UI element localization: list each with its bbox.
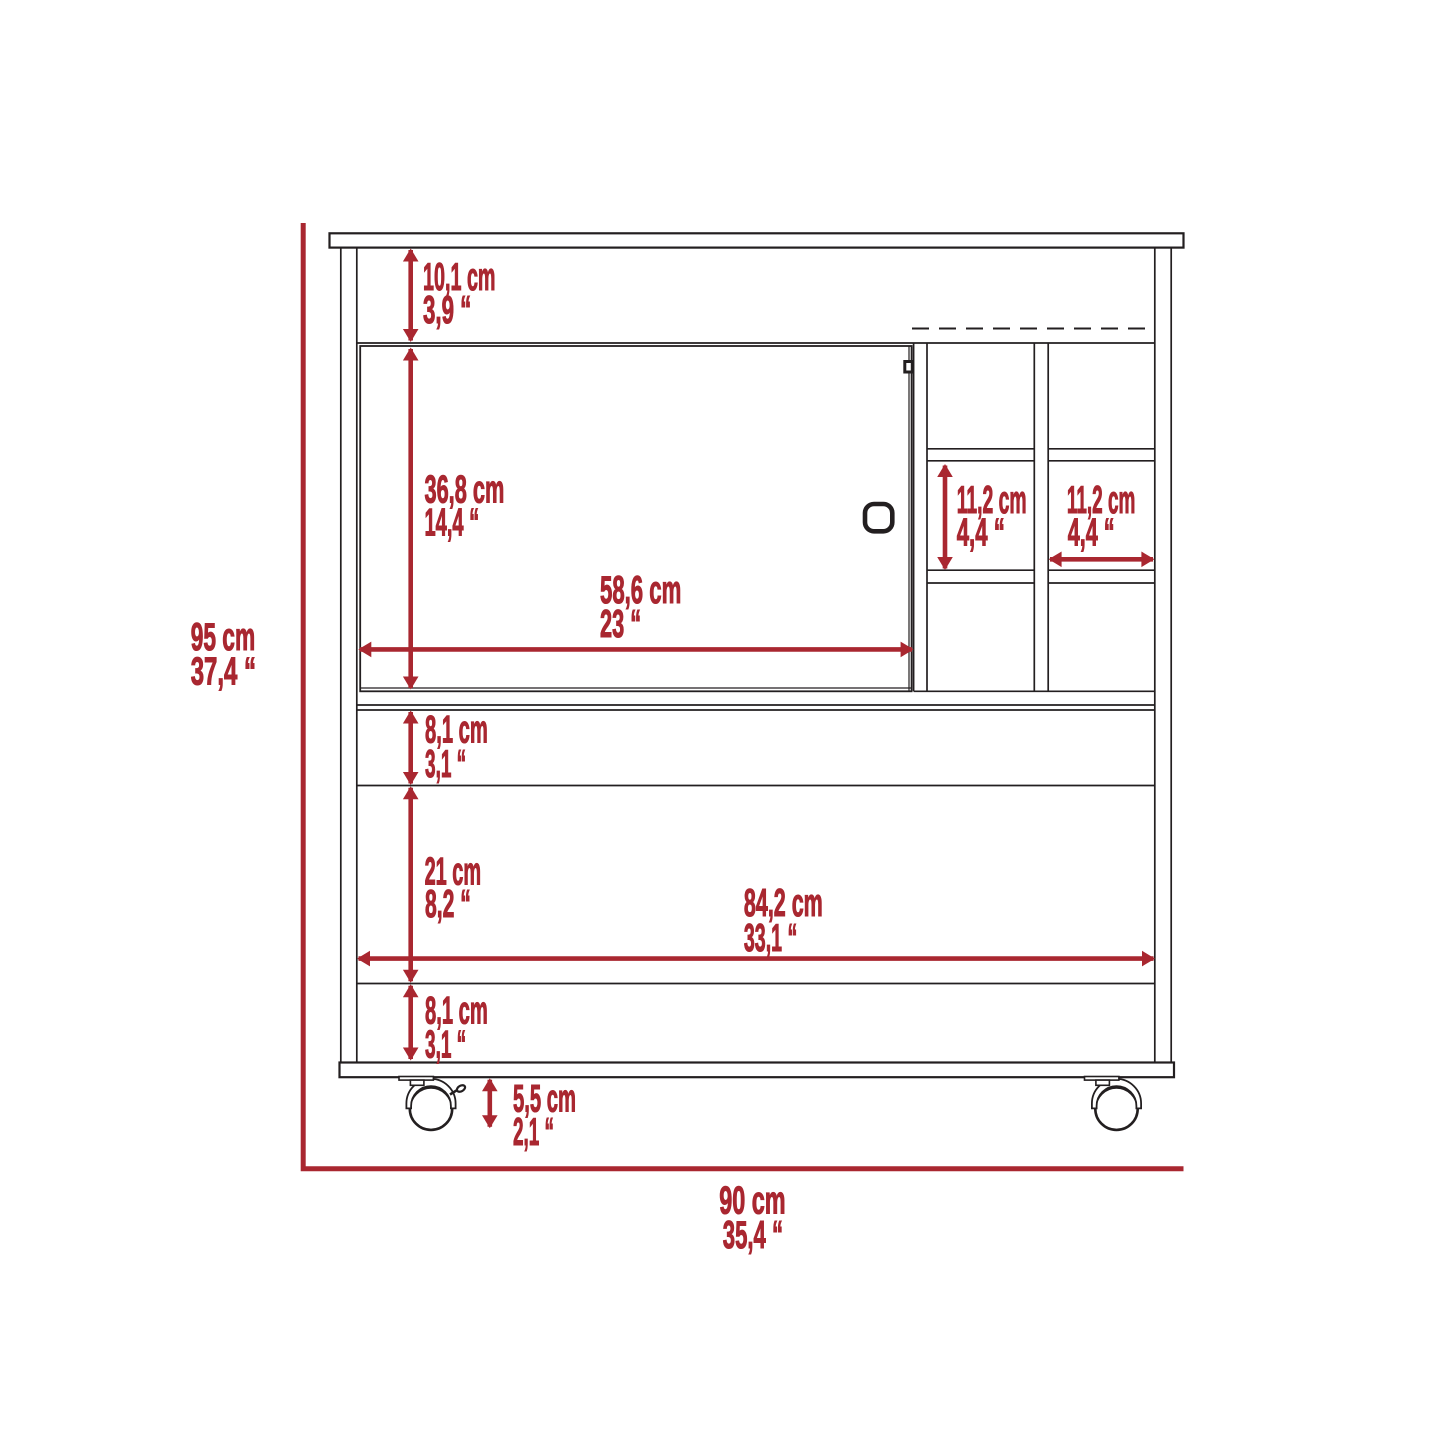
svg-text:14,4 “: 14,4 “	[425, 500, 480, 544]
svg-text:8,2 “: 8,2 “	[425, 882, 471, 926]
svg-text:35,4 “: 35,4 “	[723, 1212, 783, 1256]
svg-text:3,1 “: 3,1 “	[425, 1023, 466, 1066]
svg-text:4,4 “: 4,4 “	[1068, 510, 1115, 555]
svg-text:4,4 “: 4,4 “	[957, 510, 1005, 554]
svg-text:3,1 “: 3,1 “	[425, 743, 466, 786]
svg-text:3,9 “: 3,9 “	[423, 287, 471, 331]
svg-text:33,1 “: 33,1 “	[744, 916, 797, 960]
svg-text:2,1 “: 2,1 “	[513, 1111, 554, 1154]
svg-text:37,4 “: 37,4 “	[191, 649, 256, 692]
svg-text:23 “: 23 “	[600, 601, 641, 645]
